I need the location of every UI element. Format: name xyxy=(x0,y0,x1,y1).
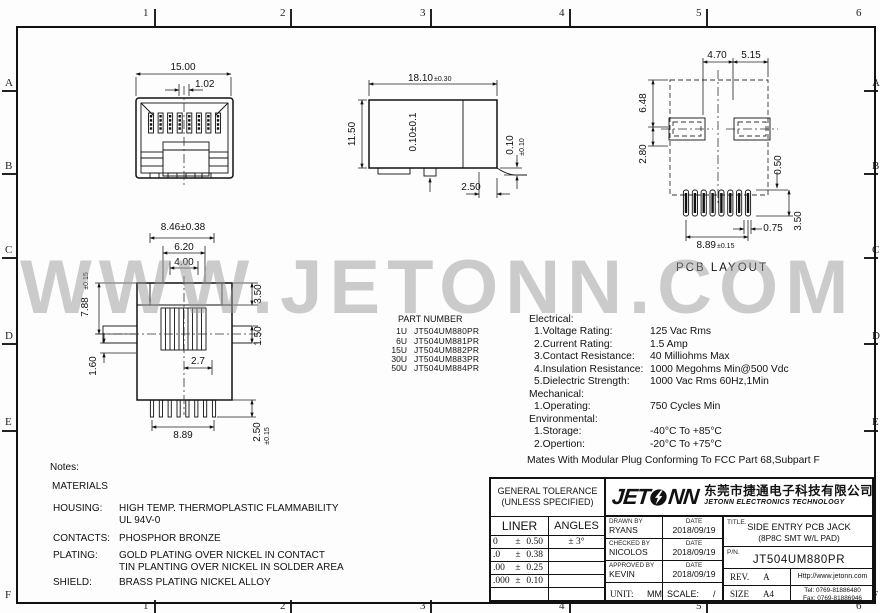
part-table-title: PART NUMBER xyxy=(383,315,479,324)
drawing-sheet: 1 2 3 4 5 6 1 2 3 4 5 6 A B C D E F A B … xyxy=(0,0,880,613)
tolerance-row: .00±0.25 xyxy=(491,562,606,575)
signoff-row: CHECKED BYNICOLOS DATE2018/09/19 xyxy=(606,539,724,561)
tol-base: .00 xyxy=(491,562,511,574)
tol-angle xyxy=(549,549,604,561)
dim-front-width: 15.00 xyxy=(170,62,195,73)
dim-side-foot-tol: ±0.10 xyxy=(519,138,526,156)
date-label: DATE xyxy=(666,562,722,569)
unit-scale-row: UNIT:MM SCALE:/ xyxy=(606,583,724,604)
dim-pcb-g: 3.50 xyxy=(793,211,804,231)
size-value: A4 xyxy=(763,589,774,599)
spec-value: -40°C To +85°C xyxy=(650,426,722,438)
dim-side-height: 11.50 xyxy=(347,121,358,146)
telephone: Tel: 0769-81886480 xyxy=(791,587,874,595)
mount-pad xyxy=(661,118,713,140)
signoff-date: 2018/09/19 xyxy=(666,525,722,535)
pn-row: P/N. JT504UM880PR xyxy=(724,547,874,569)
dim-side-inner: 0.10±0.1 xyxy=(408,112,419,151)
dim-pcb-c: 6.48 xyxy=(638,93,649,113)
signoff-date: 2018/09/19 xyxy=(666,569,722,579)
spec-label: 1.Operating: xyxy=(534,401,650,413)
tol-base: .000 xyxy=(491,575,511,587)
material-value: PHOSPHOR BRONZE xyxy=(119,533,221,545)
dim-pcb-e: 0.50 xyxy=(773,155,784,175)
date-label: DATE xyxy=(666,518,722,525)
dim-side-width: 18.10 xyxy=(408,73,433,84)
material-row: CONTACTS: PHOSPHOR BRONZE xyxy=(53,533,221,545)
spec-heading: Environmental: xyxy=(527,414,827,426)
rev-label: REV. xyxy=(730,572,749,582)
dim-bottom-pin-len-tol: ±0.15 xyxy=(264,427,271,445)
dim-bottom-top: 3.50 xyxy=(253,284,264,304)
material-value: GOLD PLATING OVER NICKEL IN CONTACT xyxy=(119,550,344,562)
spec-value: 125 Vac Rms xyxy=(650,326,711,338)
part-number: JT504UM880PR xyxy=(724,554,874,566)
tol-value: 0.10 xyxy=(525,575,548,587)
tol-value: 0.38 xyxy=(525,549,548,561)
signoff-row: DRAWN BYRYANS DATE2018/09/19 xyxy=(606,517,724,539)
tolerance-row: .0±0.38 xyxy=(491,549,606,562)
material-row: SHIELD: BRASS PLATING NICKEL ALLOY xyxy=(53,577,271,589)
spec-value: 1000 Megohms Min@500 Vdc xyxy=(650,364,789,376)
dim-bottom-inner: 4.00 xyxy=(174,257,194,268)
material-label: CONTACTS: xyxy=(53,533,119,545)
spec-value: 40 Milliohms Max xyxy=(650,351,730,363)
size-label: SIZE xyxy=(730,589,749,599)
dim-side-width-tol: ±0.30 xyxy=(434,76,452,83)
title-block: GENERAL TOLERANCE (UNLESS SPECIFIED) LIN… xyxy=(489,477,874,602)
zone-row-label: F xyxy=(5,589,11,601)
material-label: HOUSING: xyxy=(53,503,119,526)
company-name-cn: 东莞市捷通电子科技有限公司 xyxy=(704,485,873,497)
dim-side-foot: 0.10 xyxy=(505,135,516,155)
part-number-table: PART NUMBER 1U JT504UM880PR 6U JT504UM88… xyxy=(383,315,479,374)
spec-row: 1.Storage: -40°C To +85°C xyxy=(527,426,827,438)
angles-header: ANGLES xyxy=(549,517,604,535)
tol-angle: ± 3° xyxy=(549,536,604,548)
mount-pad xyxy=(726,118,778,140)
front-view: 15.00 1.02 8.46±0.38 xyxy=(136,62,233,243)
logo-bolt-icon xyxy=(649,489,668,506)
signoff-role: DRAWN BY xyxy=(609,518,662,525)
tolerance-heading: GENERAL TOLERANCE xyxy=(491,486,604,497)
signoff-name: NICOLOS xyxy=(609,547,662,557)
website: Http://www.jetonn.com xyxy=(798,573,868,580)
dim-bottom-low: 1.60 xyxy=(88,356,99,376)
signoff-row: APPROVED BYKEVIN DATE2018/09/19 xyxy=(606,561,724,583)
material-row: HOUSING: HIGH TEMP. THERMOPLASTIC FLAMMA… xyxy=(53,503,339,526)
spec-row: 2.Opertion: -20°C To +75°C xyxy=(527,439,827,451)
tolerance-row: 0±0.50 ± 3° xyxy=(491,536,606,549)
spec-row: 3.Contact Resistance: 40 Milliohms Max xyxy=(527,351,827,363)
dim-pcb-b: 5.15 xyxy=(741,50,761,61)
signoff-name: KEVIN xyxy=(609,569,662,579)
material-value: TIN PLANTING OVER NICKEL IN SOLDER AREA xyxy=(119,562,344,574)
fax: Fax: 0769-81886946 xyxy=(791,595,874,603)
title-row: TITLE. SIDE ENTRY PCB JACK (8P8C SMT W/L… xyxy=(724,517,874,547)
material-label: PLATING: xyxy=(53,550,119,573)
dim-pcb-span: 8.89 xyxy=(697,240,717,251)
date-label: DATE xyxy=(666,540,722,547)
material-row: PLATING: GOLD PLATING OVER NICKEL IN CON… xyxy=(53,550,344,573)
spec-label: 3.Contact Resistance: xyxy=(534,351,650,363)
spec-row: 1.Voltage Rating: 125 Vac Rms xyxy=(527,326,827,338)
dim-pcb-f: 0.75 xyxy=(763,223,783,234)
dim-bottom-mid: 1.50 xyxy=(253,326,264,346)
unit-value: MM xyxy=(647,589,662,599)
spec-row: 2.Current Rating: 1.5 Amp xyxy=(527,339,827,351)
pcb-layout-caption: PCB LAYOUT xyxy=(676,262,768,274)
spec-row: 1.Operating: 750 Cycles Min xyxy=(527,401,827,413)
scale-value: / xyxy=(713,589,716,599)
tol-base: .0 xyxy=(491,549,511,561)
part-pn: JT504UM884PR xyxy=(414,364,479,373)
spec-value: 750 Cycles Min xyxy=(650,401,720,413)
mating-note: Mates With Modular Plug Conforming To FC… xyxy=(527,455,820,466)
pcb-layout-view: 4.70 5.15 6.48 2.80 0.50 xyxy=(638,50,804,274)
dim-front-slot: 1.02 xyxy=(195,79,215,90)
tol-base: 0 xyxy=(491,536,511,548)
spec-label: 1.Voltage Rating: xyxy=(534,326,650,338)
spec-row: 4.Insulation Resistance: 1000 Megohms Mi… xyxy=(527,364,827,376)
unit-label: UNIT: xyxy=(610,589,634,599)
dim-side-offset: 2.50 xyxy=(461,182,481,193)
company-name-en: JETONN ELECTRONICS TECHNOLOGY xyxy=(704,497,873,509)
dim-bottom-pin-len: 2.50 xyxy=(252,422,263,442)
tolerance-header: GENERAL TOLERANCE (UNLESS SPECIFIED) xyxy=(491,479,606,517)
spec-label: 1.Storage: xyxy=(534,426,650,438)
spec-heading: Electrical: xyxy=(527,314,827,326)
tol-pm: ± xyxy=(511,562,525,574)
company-names: 东莞市捷通电子科技有限公司 JETONN ELECTRONICS TECHNOL… xyxy=(704,485,873,509)
signoff-name: RYANS xyxy=(609,525,662,535)
tol-angle xyxy=(549,562,604,574)
spec-value: 1000 Vac Rms 60Hz,1Min xyxy=(650,376,769,388)
tol-value: 0.50 xyxy=(525,536,548,548)
title-label: TITLE. xyxy=(727,519,747,526)
tol-pm: ± xyxy=(511,549,525,561)
rev-cell: REV.A xyxy=(724,569,791,586)
dim-bottom-height: 7.88 xyxy=(80,297,91,317)
jetonn-logo: JETNN xyxy=(611,484,700,510)
signoff-role: CHECKED BY xyxy=(609,540,662,547)
signoff-date: 2018/09/19 xyxy=(666,547,722,557)
tolerance-subheading: (UNLESS SPECIFIED) xyxy=(491,497,604,508)
rev-value: A xyxy=(763,572,770,582)
dim-bottom-span: 6.20 xyxy=(174,242,194,253)
dim-bottom-height-tol: ±0.15 xyxy=(83,272,90,290)
bottom-view: 6.20 4.00 7.88 ±0.15 3.50 1.50 1.60 xyxy=(80,242,271,445)
tol-angle xyxy=(549,575,604,587)
spec-label: 2.Opertion: xyxy=(534,439,650,451)
dim-pcb-d: 2.80 xyxy=(638,144,649,164)
website-cell: Http://www.jetonn.com xyxy=(791,569,874,586)
specifications: Electrical: 1.Voltage Rating: 125 Vac Rm… xyxy=(527,314,827,451)
spec-value: -20°C To +75°C xyxy=(650,439,722,451)
spec-heading: Mechanical: xyxy=(527,389,827,401)
dim-pcb-a: 4.70 xyxy=(707,50,727,61)
materials-heading: MATERIALS xyxy=(52,481,108,492)
material-value: UL 94V-0 xyxy=(119,515,339,527)
logo-text: NN xyxy=(667,484,700,510)
logo-text: JET xyxy=(611,484,651,510)
tol-pm: ± xyxy=(511,575,525,587)
part-qty: 50U xyxy=(383,364,407,373)
spec-label: 4.Insulation Resistance: xyxy=(534,364,650,376)
pn-label: P/N. xyxy=(727,549,740,556)
material-value: HIGH TEMP. THERMOPLASTIC FLAMMABILITY xyxy=(119,503,339,515)
dim-bottom-offset: 2.7 xyxy=(191,356,205,367)
spec-value: 1.5 Amp xyxy=(650,339,688,351)
signoff-role: APPROVED BY xyxy=(609,562,662,569)
spec-label: 5.Dielectric Strength: xyxy=(534,376,650,388)
telfax-cell: Tel: 0769-81886480 Fax: 0769-81886946 xyxy=(791,586,874,604)
part-row: 50U JT504UM884PR xyxy=(383,364,479,373)
dim-bottom-pins: 8.89 xyxy=(173,430,193,441)
dim-front-span: 8.46±0.38 xyxy=(161,222,206,233)
drawing-subtitle: (8P8C SMT W/L PAD) xyxy=(724,533,874,544)
material-value: BRASS PLATING NICKEL ALLOY xyxy=(119,577,271,589)
notes-heading: Notes: xyxy=(50,462,79,473)
tolerance-empty-row xyxy=(491,588,606,600)
spec-row: 5.Dielectric Strength: 1000 Vac Rms 60Hz… xyxy=(527,376,827,388)
tol-value: 0.25 xyxy=(525,562,548,574)
material-label: SHIELD: xyxy=(53,577,119,589)
tolerance-column-headers: LINER ANGLES xyxy=(491,517,606,536)
liner-header: LINER xyxy=(491,517,549,535)
scale-label: SCALE: xyxy=(667,589,699,599)
company-header: JETNN 东莞市捷通电子科技有限公司 JETONN ELECTRONICS T… xyxy=(606,479,874,517)
spec-label: 2.Current Rating: xyxy=(534,339,650,351)
tolerance-row: .000±0.10 xyxy=(491,575,606,588)
size-cell: SIZEA4 xyxy=(724,586,791,604)
dim-pcb-span-tol: ±0.15 xyxy=(717,243,735,250)
tol-pm: ± xyxy=(511,536,525,548)
side-view: 18.10 ±0.30 11.50 0.10±0.1 2.50 0.10 ±0.… xyxy=(347,73,527,198)
